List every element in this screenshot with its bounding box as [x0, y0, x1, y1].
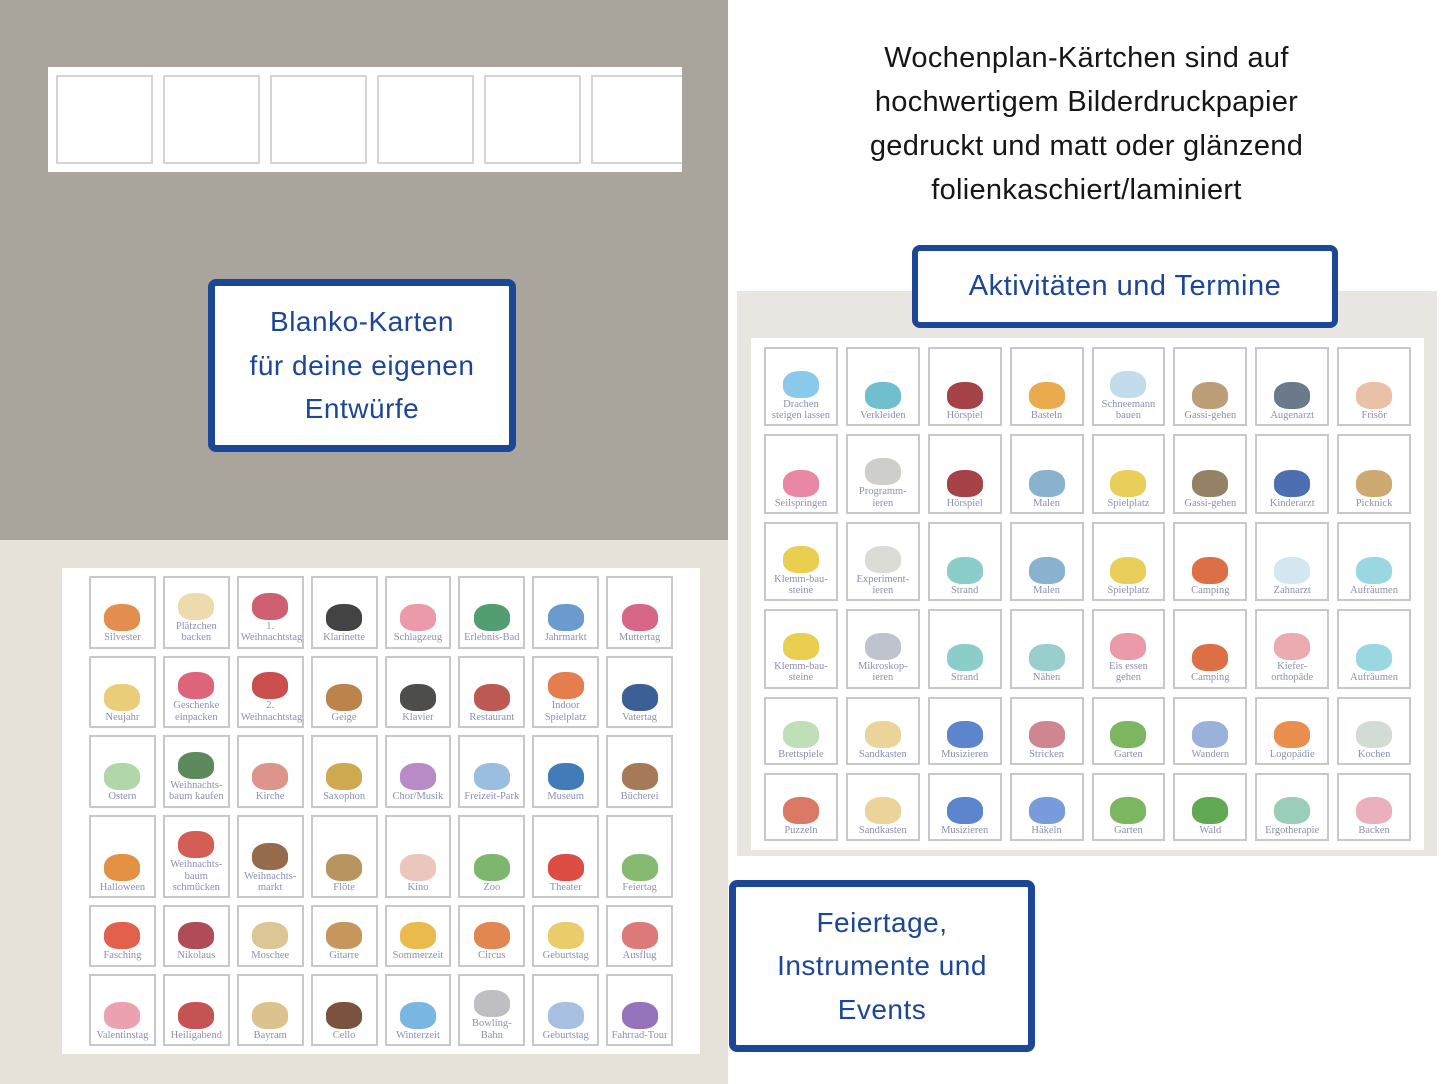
planner-card: Malen	[1010, 522, 1084, 601]
planner-card: Circus	[458, 905, 525, 966]
christmas-market-icon	[252, 843, 288, 870]
card-label: Theater	[550, 882, 582, 893]
christmas-tree-icon	[178, 752, 214, 779]
card-label: Weihnachts-markt	[241, 871, 300, 894]
planner-card: Erlebnis-Bad	[458, 576, 525, 649]
card-label: Geburtstag	[543, 950, 589, 961]
card-label: Wandern	[1191, 749, 1229, 760]
recorder-flute-icon	[326, 854, 362, 881]
tandem-bike-icon	[622, 1002, 658, 1029]
scissors-and-glue-icon	[1029, 382, 1065, 409]
planner-card: Weihnachts-baum schmücken	[163, 815, 230, 899]
card-label: Klavier	[402, 712, 434, 723]
paint-box-icon	[1029, 470, 1065, 497]
theater-curtain-icon	[548, 854, 584, 881]
card-label: Bowling-Bahn	[462, 1018, 521, 1041]
aktivitaeten-termine-label: Aktivitäten und Termine	[969, 264, 1281, 309]
planner-card: Klavier	[385, 656, 452, 729]
card-label: Kinderarzt	[1270, 498, 1315, 509]
drum-kit-icon	[400, 604, 436, 631]
roller-coaster-icon	[474, 763, 510, 790]
stand-mixer-icon	[1356, 797, 1392, 824]
planner-card: Stricken	[1010, 697, 1084, 765]
card-label: Zahnarzt	[1274, 585, 1311, 596]
restaurant-building-icon	[474, 684, 510, 711]
planner-card: Ergotherapie	[1255, 773, 1329, 841]
planner-card: Heiligabend	[163, 974, 230, 1047]
popcorn-icon	[400, 854, 436, 881]
planner-card: 2. Weihnachtstag	[237, 656, 304, 729]
planner-card: Ostern	[89, 735, 156, 808]
planner-card: Plätzchen backen	[163, 576, 230, 649]
planner-card: Geburtstag	[532, 905, 599, 966]
guitar-icon	[326, 922, 362, 949]
planner-card: Bowling-Bahn	[458, 974, 525, 1047]
card-label: Klemm-bau-steine	[768, 574, 834, 597]
planner-card: Basteln	[1010, 347, 1084, 426]
card-label: Frisör	[1362, 410, 1387, 421]
feiertage-instrumente-events-box: Feiertage, Instrumente und Events	[729, 880, 1035, 1052]
woman-with-dog-icon	[1192, 382, 1228, 409]
planner-card: Restaurant	[458, 656, 525, 729]
planner-card: Kinderarzt	[1255, 434, 1329, 513]
santa-sleigh-icon	[178, 1002, 214, 1029]
planner-card: Geige	[311, 656, 378, 729]
planner-card: Wald	[1173, 773, 1247, 841]
vegetable-basket-icon	[1110, 797, 1146, 824]
planner-card: Muttertag	[606, 576, 673, 649]
planner-card: Augenarzt	[1255, 347, 1329, 426]
planner-card: Ausflug	[606, 905, 673, 966]
planner-card: Sandkasten	[846, 697, 920, 765]
blanko-karten-box: Blanko-Karten für deine eigenen Entwürfe	[208, 279, 516, 452]
carnival-mask-icon	[104, 922, 140, 949]
planner-card: Musizieren	[928, 773, 1002, 841]
card-label: Geburtstag	[543, 1030, 589, 1041]
blank-card	[484, 75, 581, 164]
blank-card	[377, 75, 474, 164]
planner-card: Neujahr	[89, 656, 156, 729]
planner-card: Halloween	[89, 815, 156, 899]
card-label: Neujahr	[106, 712, 140, 723]
planner-card: Häkeln	[1010, 773, 1084, 841]
planner-card: Nähen	[1010, 609, 1084, 688]
card-label: Muttertag	[619, 632, 660, 643]
card-label: Halloween	[100, 882, 145, 893]
card-label: Basteln	[1031, 410, 1063, 421]
comb-and-scissors-icon	[1356, 382, 1392, 409]
radio-icon	[947, 382, 983, 409]
card-label: Fasching	[103, 950, 141, 961]
card-label: Programm-ieren	[850, 486, 916, 509]
card-label: Bücherei	[621, 791, 659, 802]
kite-icon	[783, 371, 819, 398]
blanko-karten-label: Blanko-Karten für deine eigenen Entwürfe	[250, 300, 475, 430]
card-label: Plätzchen backen	[167, 621, 226, 644]
card-label: Musizieren	[941, 825, 988, 836]
card-label: Aufräumen	[1350, 585, 1398, 596]
planner-card: Zoo	[458, 815, 525, 899]
product-description-text: Wochenplan-Kärtchen sind auf hochwertige…	[728, 36, 1445, 212]
planner-card: Vatertag	[606, 656, 673, 729]
card-label: Nikolaus	[177, 950, 215, 961]
planner-card: Drachen steigen lassen	[764, 347, 838, 426]
card-label: Gitarre	[329, 950, 359, 961]
card-label: Nähen	[1033, 672, 1060, 683]
crochet-yarn-icon	[1029, 797, 1065, 824]
planner-card: Picknick	[1337, 434, 1411, 513]
card-label: Malen	[1033, 498, 1060, 509]
card-label: Häkeln	[1031, 825, 1061, 836]
forest-trees-icon	[1192, 797, 1228, 824]
planner-card: Brettspiele	[764, 697, 838, 765]
easter-bush-icon	[104, 763, 140, 790]
calendar-jan-1-icon	[104, 684, 140, 711]
card-label: Spielplatz	[1107, 498, 1149, 509]
card-label: Kirche	[256, 791, 285, 802]
card-label: Vatertag	[622, 712, 657, 723]
christmas-stocking-icon	[178, 922, 214, 949]
tidy-room-icon	[1356, 557, 1392, 584]
eye-chart-icon	[1274, 382, 1310, 409]
planner-card: Musizieren	[928, 697, 1002, 765]
speech-therapy-icon	[1274, 721, 1310, 748]
feiertage-instrumente-events-label: Feiertage, Instrumente und Events	[777, 901, 987, 1031]
planner-card: Schlagzeug	[385, 576, 452, 649]
planner-card: Geschenke einpacken	[163, 656, 230, 729]
jump-rope-girl-icon	[783, 470, 819, 497]
museum-building-icon	[548, 763, 584, 790]
card-label: Klarinette	[323, 632, 365, 643]
planner-card: Bayram	[237, 974, 304, 1047]
planner-card: Gassi-gehen	[1173, 347, 1247, 426]
vegetable-basket-icon	[1110, 721, 1146, 748]
violin-icon	[326, 684, 362, 711]
card-label: Backen	[1358, 825, 1390, 836]
building-bricks-icon	[783, 546, 819, 573]
ice-cream-cone-icon	[1110, 633, 1146, 660]
card-label: Camping	[1191, 672, 1230, 683]
card-label: Winterzeit	[396, 1030, 440, 1041]
knitting-icon	[1029, 721, 1065, 748]
card-label: Seilspringen	[775, 498, 828, 509]
planner-card: Moschee	[237, 905, 304, 966]
camping-tent-icon	[1192, 557, 1228, 584]
card-label: Wald	[1199, 825, 1221, 836]
planner-card: Strand	[928, 609, 1002, 688]
planner-card: Wandern	[1173, 697, 1247, 765]
card-label: Indoor Spielplatz	[536, 700, 595, 723]
sand-bucket-shovel-icon	[865, 797, 901, 824]
planner-card: Theater	[532, 815, 599, 899]
card-label: Gassi-gehen	[1184, 410, 1236, 421]
cooking-pot-icon	[1356, 721, 1392, 748]
aktivitaeten-termine-box: Aktivitäten und Termine	[912, 245, 1338, 328]
lucky-clover-icon	[622, 854, 658, 881]
hiking-map-icon	[1192, 721, 1228, 748]
planner-card: Klemm-bau-steine	[764, 609, 838, 688]
card-label: Freizeit-Park	[464, 791, 519, 802]
card-label: Zoo	[483, 882, 500, 893]
birthday-cake-icon	[548, 922, 584, 949]
planner-card: Garten	[1092, 773, 1166, 841]
planner-card: Cello	[311, 974, 378, 1047]
indoor-slide-icon	[548, 672, 584, 699]
card-label: Sandkasten	[859, 749, 907, 760]
card-label: Circus	[478, 950, 505, 961]
card-label: Schneemann bauen	[1096, 399, 1162, 422]
card-label: 2. Weihnachtstag	[241, 700, 300, 723]
blank-card-strip	[48, 67, 682, 172]
circus-tent-icon	[474, 922, 510, 949]
card-label: Malen	[1033, 585, 1060, 596]
blank-card	[270, 75, 367, 164]
card-label: Schlagzeug	[394, 632, 442, 643]
planner-card: Kochen	[1337, 697, 1411, 765]
card-label: Verkleiden	[860, 410, 905, 421]
planner-card: Geburtstag	[532, 974, 599, 1047]
card-label: Drachen steigen lassen	[768, 399, 834, 422]
planner-card: Saxophon	[311, 735, 378, 808]
card-label: Weihnachts-baum schmücken	[167, 859, 226, 893]
church-icon	[252, 763, 288, 790]
holidays-card-grid: SilvesterPlätzchen backen1. Weihnachtsta…	[62, 568, 700, 1054]
braces-icon	[1274, 633, 1310, 660]
card-label: Garten	[1114, 825, 1143, 836]
planner-card: Jahrmarkt	[532, 576, 599, 649]
music-notes-icon	[947, 797, 983, 824]
planner-card: Klemm-bau-steine	[764, 522, 838, 601]
planner-card: Experiment-ieren	[846, 522, 920, 601]
card-label: Logopädie	[1270, 749, 1315, 760]
card-label: Musizieren	[941, 749, 988, 760]
planner-card: Weihnachts-markt	[237, 815, 304, 899]
planner-card: Valentinstag	[89, 974, 156, 1047]
card-label: Gassi-gehen	[1184, 498, 1236, 509]
beach-surfer-icon	[947, 557, 983, 584]
planner-card: Mikroskop-ieren	[846, 609, 920, 688]
card-label: Ergotherapie	[1265, 825, 1319, 836]
planner-card: Kirche	[237, 735, 304, 808]
mosque-icon	[252, 922, 288, 949]
card-label: Silvester	[104, 632, 141, 643]
camping-tent-icon	[1192, 644, 1228, 671]
planner-card: Flöte	[311, 815, 378, 899]
planner-card: Winterzeit	[385, 974, 452, 1047]
planner-card: Verkleiden	[846, 347, 920, 426]
planner-card: Backen	[1337, 773, 1411, 841]
snowman-icon	[1110, 371, 1146, 398]
planner-card: Kino	[385, 815, 452, 899]
clarinet-icon	[326, 604, 362, 631]
ergo-therapy-icon	[1274, 797, 1310, 824]
card-label: Sommerzeit	[393, 950, 444, 961]
card-label: Museum	[547, 791, 584, 802]
planner-card: Camping	[1173, 609, 1247, 688]
card-label: Erlebnis-Bad	[464, 632, 519, 643]
card-label: Geschenke einpacken	[167, 700, 226, 723]
planner-card: Fasching	[89, 905, 156, 966]
planner-card: Camping	[1173, 522, 1247, 601]
card-label: Spielplatz	[1107, 585, 1149, 596]
card-label: Brettspiele	[778, 749, 824, 760]
cookie-dough-icon	[178, 593, 214, 620]
card-label: Stricken	[1029, 749, 1064, 760]
tooth-and-mirror-icon	[1274, 557, 1310, 584]
microscope-icon	[865, 633, 901, 660]
piano-icon	[400, 684, 436, 711]
lovebirds-icon	[104, 1002, 140, 1029]
card-label: Garten	[1114, 749, 1143, 760]
sewing-machine-icon	[1029, 644, 1065, 671]
card-label: Cello	[333, 1030, 356, 1041]
planner-card: Aufräumen	[1337, 522, 1411, 601]
planner-card: Schneemann bauen	[1092, 347, 1166, 426]
planner-card: Garten	[1092, 697, 1166, 765]
planner-card: Feiertag	[606, 815, 673, 899]
planner-card: Gassi-gehen	[1173, 434, 1247, 513]
activities-card-grid: Drachen steigen lassenVerkleidenHörspiel…	[751, 338, 1424, 850]
card-label: Saxophon	[323, 791, 365, 802]
card-label: Bayram	[254, 1030, 287, 1041]
paint-box-icon	[1029, 557, 1065, 584]
card-label: Hörspiel	[947, 498, 983, 509]
crescent-mosque-icon	[252, 1002, 288, 1029]
card-label: 1. Weihnachtstag	[241, 621, 300, 644]
boy-with-dog-icon	[1192, 470, 1228, 497]
planner-card: Eis essen gehen	[1092, 609, 1166, 688]
picnic-basket-icon	[1356, 470, 1392, 497]
planner-card: Strand	[928, 522, 1002, 601]
sand-bucket-shovel-icon	[865, 721, 901, 748]
bowling-pins-icon	[474, 990, 510, 1017]
planner-card: 1. Weihnachtstag	[237, 576, 304, 649]
planner-card: Spielplatz	[1092, 522, 1166, 601]
sun-and-clock-icon	[400, 922, 436, 949]
planner-card: Silvester	[89, 576, 156, 649]
card-label: Klemm-bau-steine	[768, 661, 834, 684]
planner-card: Weihnachts-baum kaufen	[163, 735, 230, 808]
bookshelf-icon	[622, 763, 658, 790]
planner-card: Programm-ieren	[846, 434, 920, 513]
planner-card: Indoor Spielplatz	[532, 656, 599, 729]
gift-pile-icon	[252, 593, 288, 620]
dress-up-mirror-icon	[865, 382, 901, 409]
beach-surfer-icon	[947, 644, 983, 671]
snowflake-clock-icon	[400, 1002, 436, 1029]
planner-card: Hörspiel	[928, 347, 1002, 426]
playground-icon	[1110, 470, 1146, 497]
ferris-wheel-icon	[548, 604, 584, 631]
card-label: Jahrmarkt	[545, 632, 587, 643]
card-label: Aufräumen	[1350, 672, 1398, 683]
awesome-dad-lettering-icon	[622, 684, 658, 711]
card-label: Geige	[332, 712, 357, 723]
music-notes-icon	[947, 721, 983, 748]
card-label: Experiment-ieren	[850, 574, 916, 597]
planner-card: Seilspringen	[764, 434, 838, 513]
card-label: Kiefer-orthopäde	[1259, 661, 1325, 684]
building-bricks-icon	[783, 633, 819, 660]
board-game-icon	[783, 721, 819, 748]
card-label: Camping	[1191, 585, 1230, 596]
water-slide-icon	[474, 604, 510, 631]
product-collage: Blanko-Karten für deine eigenen Entwürfe…	[0, 0, 1445, 1084]
puzzle-pieces-icon	[783, 797, 819, 824]
card-label: Restaurant	[469, 712, 514, 723]
saxophone-icon	[326, 763, 362, 790]
card-label: Weihnachts-baum kaufen	[167, 780, 226, 803]
ribbon-scissors-icon	[178, 672, 214, 699]
radio-icon	[947, 470, 983, 497]
card-label: Hörspiel	[947, 410, 983, 421]
card-label: Ostern	[108, 791, 136, 802]
planner-card: Aufräumen	[1337, 609, 1411, 688]
kids-lab-coats-icon	[865, 546, 901, 573]
planner-card: Museum	[532, 735, 599, 808]
card-label: Fahrrad-Tour	[612, 1030, 668, 1041]
card-label: Sandkasten	[859, 825, 907, 836]
planner-card: Fahrrad-Tour	[606, 974, 673, 1047]
card-label: Mikroskop-ieren	[850, 661, 916, 684]
planner-card: Sommerzeit	[385, 905, 452, 966]
playground-icon	[1110, 557, 1146, 584]
planner-card: Sandkasten	[846, 773, 920, 841]
card-label: Valentinstag	[96, 1030, 148, 1041]
planner-card: Malen	[1010, 434, 1084, 513]
card-label: Picknick	[1356, 498, 1393, 509]
card-label: Moschee	[251, 950, 289, 961]
red-bus-icon	[622, 922, 658, 949]
tidy-room-icon	[1356, 644, 1392, 671]
planner-card: Puzzeln	[764, 773, 838, 841]
card-label: Puzzeln	[784, 825, 817, 836]
planner-card: Gitarre	[311, 905, 378, 966]
gift-box-icon	[548, 1002, 584, 1029]
car-with-gifts-icon	[252, 672, 288, 699]
christmas-ornaments-icon	[178, 831, 214, 858]
card-label: Strand	[951, 672, 978, 683]
planner-card: Spielplatz	[1092, 434, 1166, 513]
microphone-icon	[400, 763, 436, 790]
planner-card: Chor/Musik	[385, 735, 452, 808]
card-label: Ausflug	[623, 950, 657, 961]
card-label: Flöte	[333, 882, 355, 893]
cello-icon	[326, 1002, 362, 1029]
blank-card	[163, 75, 260, 164]
planner-card: Logopädie	[1255, 697, 1329, 765]
retro-computer-icon	[865, 458, 901, 485]
planner-card: Zahnarzt	[1255, 522, 1329, 601]
planner-card: Hörspiel	[928, 434, 1002, 513]
planner-card: Klarinette	[311, 576, 378, 649]
card-label: Augenarzt	[1270, 410, 1314, 421]
card-label: Feiertag	[622, 882, 656, 893]
planner-card: Nikolaus	[163, 905, 230, 966]
planner-card: Bücherei	[606, 735, 673, 808]
blank-card	[591, 75, 682, 164]
card-label: Strand	[951, 585, 978, 596]
planner-card: Freizeit-Park	[458, 735, 525, 808]
card-label: Kochen	[1358, 749, 1391, 760]
best-mom-lettering-icon	[622, 604, 658, 631]
card-label: Chor/Musik	[393, 791, 444, 802]
fireworks-icon	[104, 604, 140, 631]
pumpkins-icon	[104, 854, 140, 881]
planner-card: Kiefer-orthopäde	[1255, 609, 1329, 688]
pediatrician-icon	[1274, 470, 1310, 497]
blank-card	[56, 75, 153, 164]
